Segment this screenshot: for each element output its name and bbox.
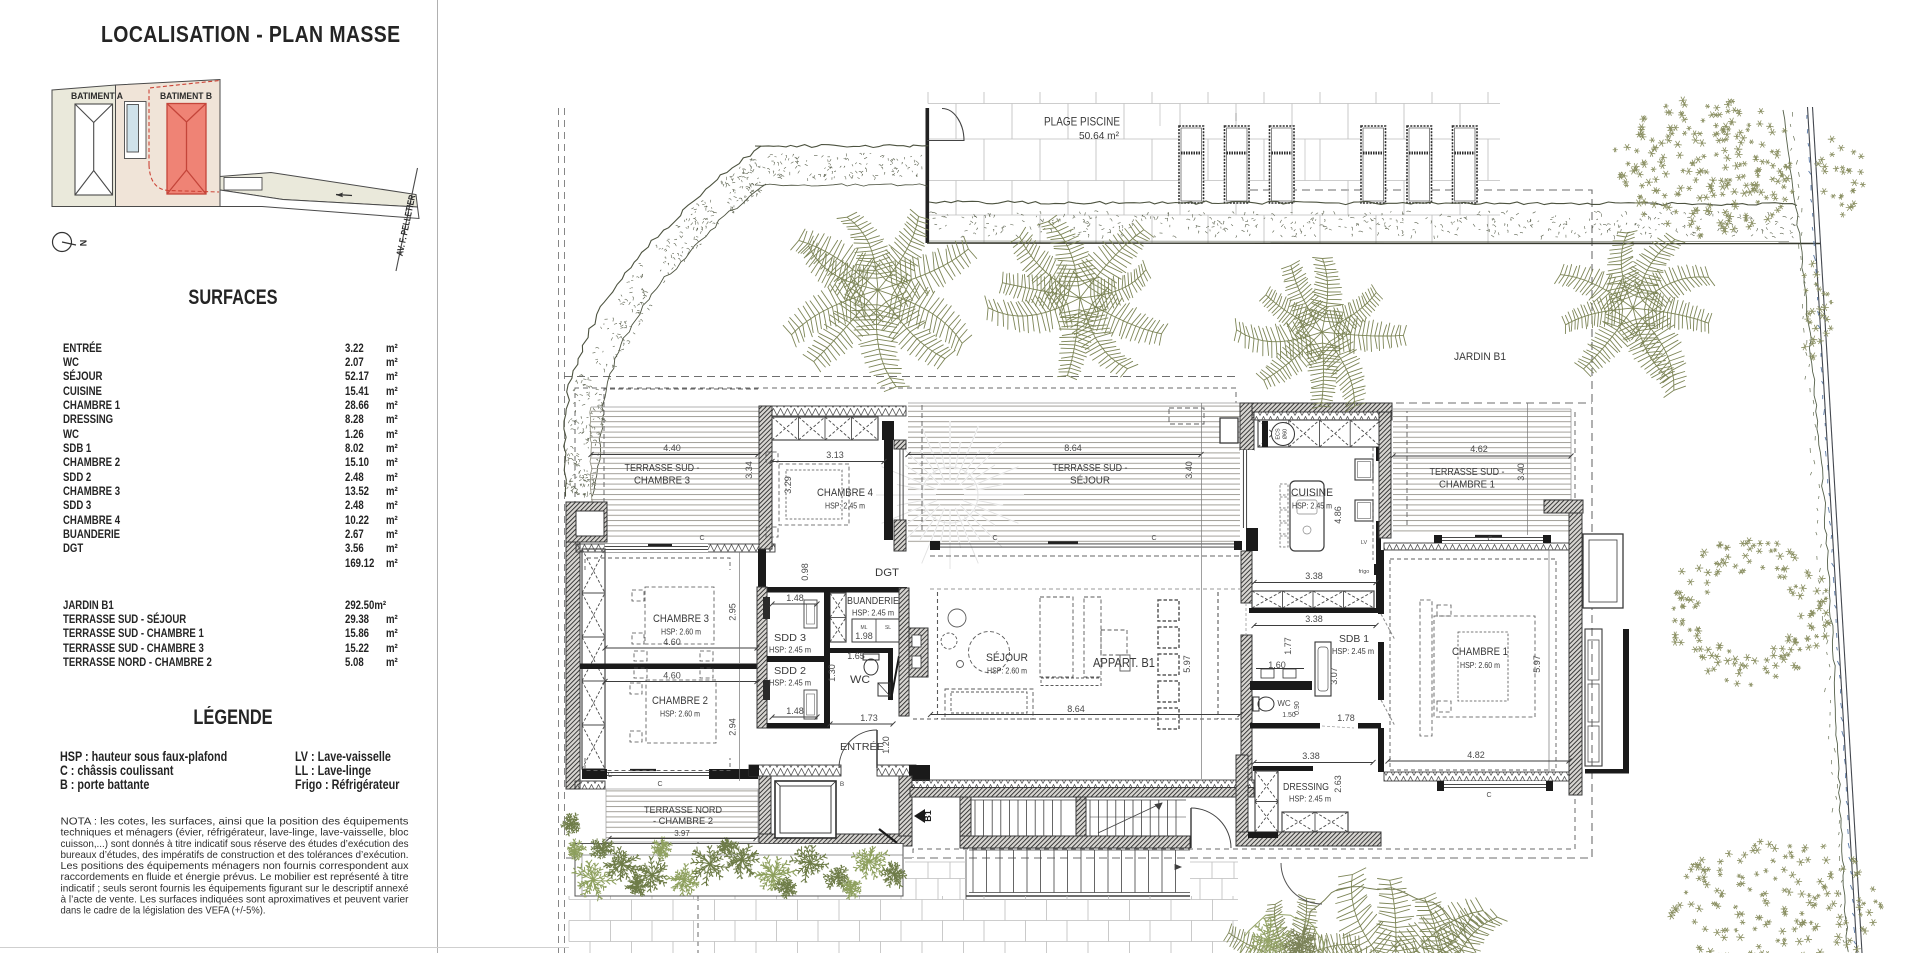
svg-text:frigo: frigo bbox=[1359, 569, 1370, 575]
svg-text:TERRASSE SUD -: TERRASSE SUD - bbox=[625, 462, 700, 474]
svg-text:3.40: 3.40 bbox=[1184, 461, 1194, 479]
svg-text:WC: WC bbox=[850, 674, 870, 686]
svg-text:2.94: 2.94 bbox=[728, 718, 738, 736]
svg-text:50.64 m²: 50.64 m² bbox=[1079, 130, 1119, 142]
svg-text:HSP: 2.60 m: HSP: 2.60 m bbox=[660, 709, 700, 719]
svg-text:0.90: 0.90 bbox=[1294, 701, 1301, 715]
svg-text:HSP: 2.45 m: HSP: 2.45 m bbox=[1292, 501, 1332, 511]
svg-text:3.38: 3.38 bbox=[1305, 614, 1323, 624]
svg-text:C: C bbox=[1151, 535, 1156, 542]
svg-text:1.77: 1.77 bbox=[1283, 637, 1293, 655]
svg-text:ML: ML bbox=[861, 625, 868, 631]
svg-text:HSP: 2.45 m: HSP: 2.45 m bbox=[852, 609, 894, 618]
svg-text:JARDIN B1: JARDIN B1 bbox=[1454, 351, 1506, 363]
svg-text:4.86: 4.86 bbox=[1333, 506, 1343, 524]
svg-text:Ø60: Ø60 bbox=[1283, 429, 1289, 439]
svg-text:8.64: 8.64 bbox=[1064, 443, 1082, 453]
svg-text:3.29: 3.29 bbox=[783, 476, 793, 494]
svg-text:WC: WC bbox=[1277, 699, 1291, 708]
svg-text:3.38: 3.38 bbox=[1302, 751, 1320, 761]
svg-text:1.98: 1.98 bbox=[855, 631, 873, 641]
svg-text:3.07: 3.07 bbox=[1329, 667, 1339, 685]
svg-text:ECS: ECS bbox=[1276, 428, 1282, 440]
svg-text:SL: SL bbox=[885, 625, 891, 631]
svg-text:3.13: 3.13 bbox=[826, 450, 844, 460]
svg-text:1.30: 1.30 bbox=[827, 664, 837, 682]
svg-text:HSP: 2.45 m: HSP: 2.45 m bbox=[1289, 795, 1331, 804]
svg-text:CHAMBRE 3: CHAMBRE 3 bbox=[634, 475, 690, 487]
svg-text:3.34: 3.34 bbox=[744, 461, 754, 479]
svg-text:SÉJOUR: SÉJOUR bbox=[986, 651, 1028, 664]
svg-text:HSP: 2.45 m: HSP: 2.45 m bbox=[1332, 647, 1374, 656]
svg-text:TERRASSE SUD -: TERRASSE SUD - bbox=[1430, 466, 1505, 478]
svg-text:HSP: 2.60 m: HSP: 2.60 m bbox=[987, 666, 1027, 676]
svg-text:HSP: 2.45 m: HSP: 2.45 m bbox=[769, 646, 811, 655]
svg-text:BUANDERIE: BUANDERIE bbox=[847, 595, 899, 607]
svg-text:C: C bbox=[699, 535, 704, 542]
svg-text:HSP: 2.60 m: HSP: 2.60 m bbox=[1460, 660, 1500, 670]
svg-text:0.98: 0.98 bbox=[800, 563, 810, 581]
svg-text:TERRASSE NORD: TERRASSE NORD bbox=[644, 805, 722, 816]
svg-text:SÉJOUR: SÉJOUR bbox=[1070, 474, 1110, 487]
svg-text:HSP: 2.45 m: HSP: 2.45 m bbox=[825, 501, 865, 511]
svg-text:LV: LV bbox=[1361, 540, 1368, 546]
svg-text:4.62: 4.62 bbox=[1470, 444, 1488, 454]
svg-text:CHAMBRE 1: CHAMBRE 1 bbox=[1452, 646, 1508, 658]
svg-text:1.48: 1.48 bbox=[786, 593, 804, 603]
svg-text:4.40: 4.40 bbox=[663, 443, 681, 453]
svg-text:DGT: DGT bbox=[875, 567, 899, 579]
svg-text:APPART. B1: APPART. B1 bbox=[1093, 656, 1155, 670]
svg-text:3.97: 3.97 bbox=[674, 829, 690, 838]
svg-text:4.60: 4.60 bbox=[663, 637, 681, 647]
svg-text:5.97: 5.97 bbox=[1182, 655, 1192, 673]
svg-text:3.40: 3.40 bbox=[1516, 463, 1526, 481]
svg-text:PLAGE PISCINE: PLAGE PISCINE bbox=[1044, 115, 1120, 129]
svg-text:8.64: 8.64 bbox=[1067, 704, 1085, 714]
svg-text:4.60: 4.60 bbox=[663, 671, 681, 681]
svg-text:CHAMBRE 2: CHAMBRE 2 bbox=[652, 695, 708, 707]
svg-text:CUISINE: CUISINE bbox=[1291, 487, 1333, 499]
svg-text:C: C bbox=[607, 772, 612, 779]
svg-text:5.97: 5.97 bbox=[1532, 655, 1542, 673]
svg-text:C: C bbox=[1486, 792, 1491, 799]
svg-text:SDB 1: SDB 1 bbox=[1339, 633, 1369, 645]
svg-text:SDD 3: SDD 3 bbox=[774, 632, 806, 644]
svg-text:1.78: 1.78 bbox=[1337, 713, 1355, 723]
svg-text:CHAMBRE 1: CHAMBRE 1 bbox=[1439, 479, 1495, 491]
svg-text:1.60: 1.60 bbox=[1268, 660, 1286, 670]
svg-text:ENTRÉE: ENTRÉE bbox=[840, 740, 884, 753]
svg-text:TERRASSE SUD -: TERRASSE SUD - bbox=[1053, 462, 1128, 474]
svg-text:CHAMBRE 3: CHAMBRE 3 bbox=[653, 613, 709, 625]
svg-text:B: B bbox=[840, 781, 844, 788]
svg-text:1.65: 1.65 bbox=[847, 651, 865, 661]
svg-text:3.38: 3.38 bbox=[1305, 571, 1323, 581]
svg-text:C: C bbox=[657, 781, 662, 788]
svg-text:2.95: 2.95 bbox=[728, 603, 738, 621]
svg-text:C: C bbox=[992, 535, 997, 542]
svg-text:HSP: 2.45 m: HSP: 2.45 m bbox=[769, 679, 811, 688]
svg-text:SDD 2: SDD 2 bbox=[774, 665, 806, 677]
svg-text:- CHAMBRE 2: - CHAMBRE 2 bbox=[653, 816, 713, 827]
svg-text:B1: B1 bbox=[923, 810, 933, 822]
svg-text:CHAMBRE 4: CHAMBRE 4 bbox=[817, 487, 873, 499]
svg-text:HSP: 2.60 m: HSP: 2.60 m bbox=[661, 627, 701, 637]
svg-text:2.63: 2.63 bbox=[1333, 775, 1343, 793]
svg-text:1.48: 1.48 bbox=[786, 706, 804, 716]
svg-text:1.73: 1.73 bbox=[860, 713, 878, 723]
svg-text:4.82: 4.82 bbox=[1467, 750, 1485, 760]
svg-text:DRESSING: DRESSING bbox=[1283, 781, 1329, 793]
svg-text:C: C bbox=[1487, 536, 1492, 543]
